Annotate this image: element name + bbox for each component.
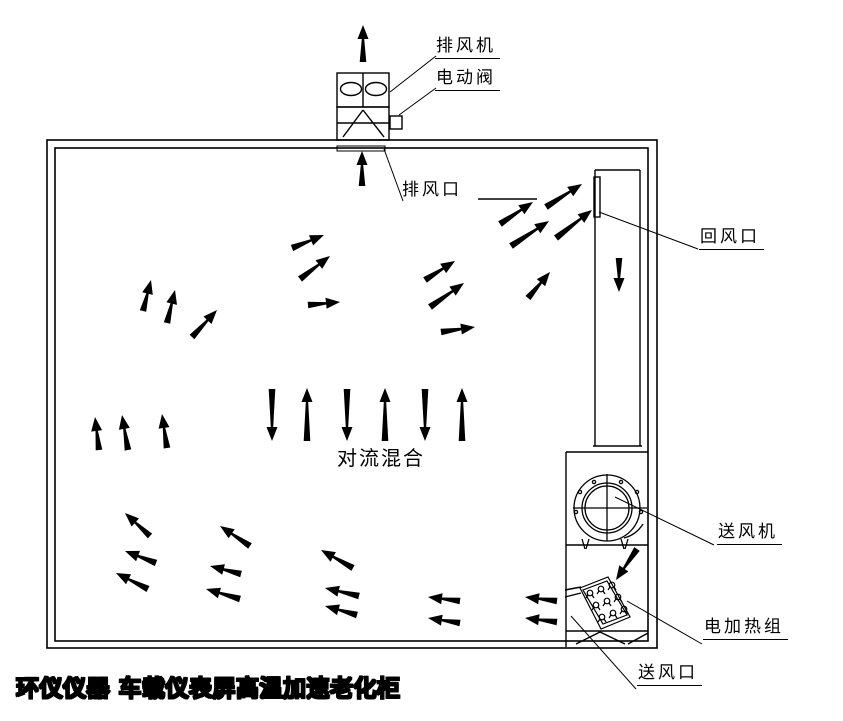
heater-bank-icon xyxy=(580,577,630,629)
airflow-arrow-convection-up-3 xyxy=(457,388,468,441)
airflow-arrow-left-up-1 xyxy=(91,417,102,450)
airflow-arrow-mid-right-1 xyxy=(423,261,455,283)
airflow-arrow-mid-right-2 xyxy=(428,283,464,310)
airflow-arrow-mid-left-1 xyxy=(291,235,324,251)
label-electric-valve: 电动阀 xyxy=(435,69,500,91)
valve-actuator-icon xyxy=(390,116,402,129)
airflow-arrow-mid-right-3 xyxy=(441,324,476,336)
airflow-arrows xyxy=(91,25,640,626)
diagram-canvas xyxy=(0,0,843,721)
airflow-arrow-to-return-1 xyxy=(498,202,533,227)
airflow-arrow-bottom-mid-2 xyxy=(325,586,360,599)
airflow-arrow-exhaust-out-top xyxy=(358,25,369,62)
leader-supply-outlet xyxy=(571,616,636,689)
leader-heater-group xyxy=(627,601,702,644)
airflow-arrow-mid-left-2 xyxy=(298,256,330,282)
fan-blade-icon xyxy=(366,83,387,96)
return-duct xyxy=(593,170,642,446)
airflow-arrow-convection-down-1 xyxy=(267,389,278,441)
airflow-arrow-to-return-5 xyxy=(526,272,551,300)
airflow-arrow-bottom-mid-1 xyxy=(321,550,355,571)
leader-electric-valve xyxy=(399,88,436,115)
supply-outlet-lip xyxy=(565,593,581,597)
heater-coil-icon xyxy=(586,590,594,598)
brand-caption: 环仪仪器 车载仪表屏高温加速老化柜 xyxy=(16,669,401,703)
label-supply-fan: 送风机 xyxy=(717,523,782,545)
airflow-arrow-fan-discharge xyxy=(616,547,640,580)
leader-supply-fan xyxy=(615,497,714,545)
label-leader-lines xyxy=(384,56,714,689)
heater-coil-icon xyxy=(597,586,605,594)
heater-coil-icon xyxy=(603,598,611,606)
airflow-arrow-mid-left-3 xyxy=(308,298,340,309)
fan-blade-icon xyxy=(341,83,362,96)
label-exhaust-fan: 排风机 xyxy=(435,37,500,59)
airflow-arrow-convection-down-2 xyxy=(342,389,353,441)
leader-exhaust-outlet xyxy=(384,149,403,201)
supply-outlet-lip xyxy=(565,587,581,590)
supply-fan-icon xyxy=(573,474,647,549)
heater-coil-icon xyxy=(598,614,606,622)
airflow-arrow-to-return-4 xyxy=(554,210,592,241)
aging-cabinet-diagram: 排风机 电动阀 排风口 回风口 送风机 电加热组 送风口 对流混合 环仪仪器 车… xyxy=(0,0,843,721)
airflow-arrow-bottom-mid-4 xyxy=(428,593,460,604)
label-convection-mixing: 对流混合 xyxy=(337,447,425,469)
heater-coil-icon xyxy=(609,610,617,618)
airflow-arrow-supply-out-2 xyxy=(525,614,557,625)
airflow-arrow-to-return-2 xyxy=(544,184,582,210)
airflow-arrow-left-up-3 xyxy=(159,414,171,449)
airflow-arrow-bottom-left-5 xyxy=(210,564,242,577)
airflow-arrow-convection-down-3 xyxy=(420,389,431,441)
label-heater-group: 电加热组 xyxy=(703,618,788,640)
airflow-arrow-duct-down xyxy=(614,258,625,292)
airflow-arrow-convection-up-2 xyxy=(380,388,391,441)
label-supply-outlet: 送风口 xyxy=(637,664,702,686)
airflow-arrow-left-up-2 xyxy=(119,415,131,451)
airflow-arrow-bottom-left-1 xyxy=(125,513,152,538)
heater-coil-icon xyxy=(592,602,600,610)
leader-exhaust-fan xyxy=(390,56,436,92)
airflow-arrow-bottom-left-3 xyxy=(116,573,150,592)
airflow-arrow-bottom-mid-3 xyxy=(325,605,358,619)
airflow-arrow-bottom-left-4 xyxy=(220,526,252,549)
airflow-arrow-convection-up-1 xyxy=(302,388,313,441)
airflow-arrow-to-exhaust-opening xyxy=(357,151,368,186)
heater-coils xyxy=(586,582,628,622)
airflow-arrow-to-return-3 xyxy=(509,221,549,249)
airflow-arrow-upper-left-1 xyxy=(140,280,153,312)
airflow-arrow-upper-left-3 xyxy=(190,310,217,339)
airflow-arrow-bottom-left-2 xyxy=(125,551,157,566)
exhaust-fan-unit xyxy=(337,73,402,140)
airflow-arrow-supply-out-1 xyxy=(525,593,557,604)
airflow-arrow-bottom-mid-5 xyxy=(428,615,461,627)
label-return-inlet: 回风口 xyxy=(699,228,764,250)
airflow-arrow-bottom-left-6 xyxy=(206,588,241,603)
label-exhaust-outlet: 排风口 xyxy=(402,181,462,200)
airflow-arrow-upper-left-2 xyxy=(164,290,177,324)
